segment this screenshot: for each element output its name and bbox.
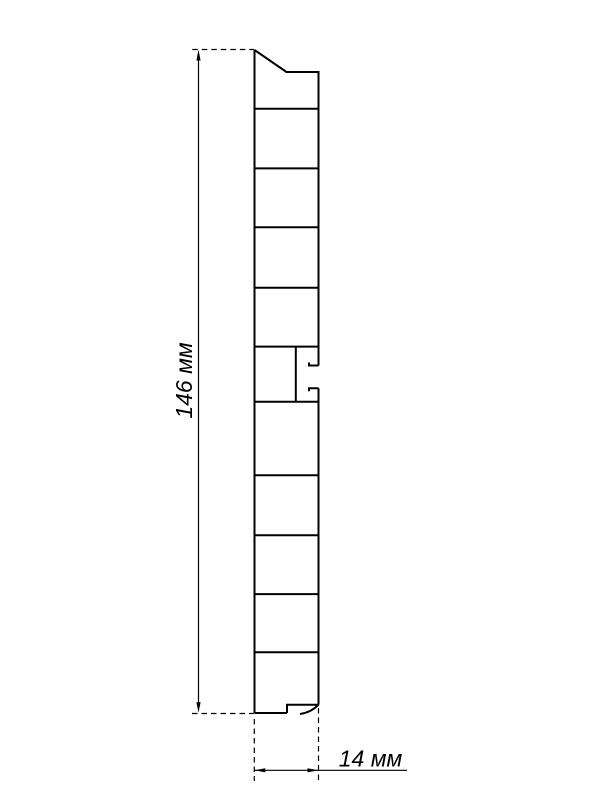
svg-text:14 мм: 14 мм — [339, 745, 403, 771]
svg-text:146 мм: 146 мм — [171, 342, 197, 419]
